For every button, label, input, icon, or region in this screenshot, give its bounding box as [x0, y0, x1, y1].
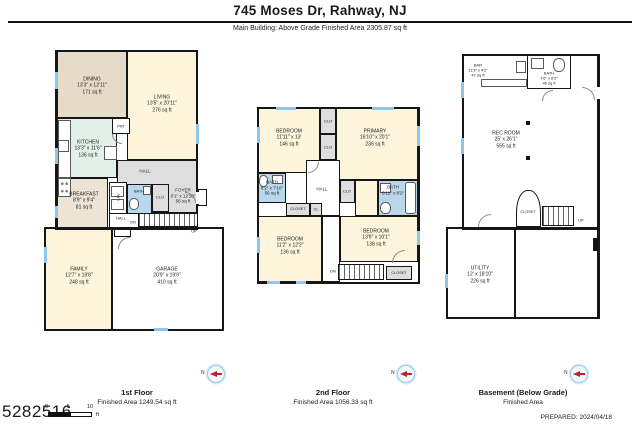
scale-label-0: 0: [45, 404, 48, 410]
page-subtitle: Main Building: Above Grade Finished Area…: [0, 25, 640, 32]
room-vestibule: [355, 180, 378, 216]
window: [372, 107, 394, 110]
stairs-second-floor: [338, 264, 384, 280]
bath-first-toilet: [129, 198, 139, 210]
compass-arrow-tail: [580, 373, 585, 375]
tag-closet-e: CLOSET: [391, 271, 406, 275]
label-kitchen: KITCHEN 13'3" x 11'6" 136 sq ft: [74, 140, 101, 159]
window: [55, 148, 58, 164]
label-utility: UTILITY 12' x 18'10" 226 sq ft: [467, 266, 493, 285]
label-dining: DINING 13'3" x 12'11" 171 sq ft: [77, 77, 107, 96]
page-title: 745 Moses Dr, Rahway, NJ: [0, 3, 640, 18]
tag-closet-first: CLO: [156, 195, 164, 200]
chimney: [593, 238, 598, 251]
label-bedroom1: BEDROOM 11'11" x 13' 146 sq ft: [276, 129, 302, 148]
tag-up-basement: UP: [578, 218, 584, 223]
bar-sink: [516, 61, 526, 73]
compass-arrow: [400, 371, 407, 377]
window: [44, 247, 47, 263]
room-closet-basement: [516, 190, 541, 227]
tag-up-first: UP: [191, 229, 197, 234]
window: [461, 138, 464, 154]
window: [296, 281, 306, 284]
basement-bath-sink: [531, 58, 544, 69]
support-column: [526, 121, 530, 125]
tag-clo-a: CLO: [324, 119, 332, 124]
stairs-basement: [542, 206, 574, 226]
compass-arrow-tail: [217, 373, 222, 375]
label-foyer: FOYER 6'1" x 12'10" 56 sq ft: [171, 188, 196, 205]
window: [276, 107, 296, 110]
window: [55, 72, 58, 89]
label-bath-basement: BATH 7'6" x 6'2" 46 sq ft: [540, 71, 558, 86]
tag-pantry: PNT: [117, 124, 125, 129]
caption-second-floor: 2nd Floor Finished Area 1056.33 sq ft: [293, 388, 372, 406]
bath2-toilet: [380, 202, 391, 214]
scale-label-10: 10: [87, 404, 93, 410]
scale-bar-segment: [48, 412, 70, 417]
window: [417, 231, 420, 245]
tag-hall-upper: HALL: [139, 169, 150, 174]
scale-unit: ft: [96, 412, 99, 418]
window: [154, 328, 168, 331]
label-rec: REC ROOM 25' x 26'1" 555 sq ft: [492, 131, 520, 150]
caption-basement: Basement (Below Grade) Finished Area: [479, 388, 568, 406]
tag-clo-b: CLO: [324, 145, 332, 150]
window: [257, 127, 260, 143]
bar-counter: [481, 79, 527, 87]
label-bath1: BATH 8'2" x 7'10" 56 sq ft: [261, 180, 283, 197]
floorplan-sheet: 745 Moses Dr, Rahway, NJ Main Building: …: [0, 0, 640, 426]
label-garage: GARAGE 20'9" x 19'9" 410 sq ft: [153, 267, 180, 286]
window: [461, 82, 464, 98]
scale-label-5: 5: [67, 404, 70, 410]
label-living: LIVING 13'5" x 20'11" 276 sq ft: [147, 95, 177, 114]
compass-arrow: [573, 371, 580, 377]
window: [55, 206, 58, 218]
caption-first-floor: 1st Floor Finished Area 1249.54 sq ft: [97, 388, 176, 406]
tag-closet-c: CLOSET: [290, 207, 305, 211]
window: [267, 281, 280, 284]
tag-hall-lower: HALL: [116, 216, 126, 221]
label-bedroom2: BEDROOM 11'2" x 12'2" 136 sq ft: [276, 237, 303, 256]
label-bar: BAR 11'3" x 4'2" 47 sq ft: [468, 63, 487, 78]
window: [257, 237, 260, 253]
window: [445, 274, 448, 288]
compass-icon: N: [397, 365, 415, 383]
tag-closet-cl: CL: [313, 207, 318, 212]
tag-dn-first: DN: [130, 220, 136, 225]
kitchen-fridge: [104, 146, 117, 160]
tag-hall-second: HALL: [316, 187, 327, 192]
stairs-first-floor: [138, 213, 198, 227]
label-bedroom3: BEDROOM 13'9" x 10'1" 138 sq ft: [362, 229, 389, 248]
tag-bath-first: BATH: [134, 189, 144, 194]
compass-arrow: [210, 371, 217, 377]
lav-sink-lower: [111, 199, 124, 210]
label-primary: PRIMARY 16'10" x 20'1" 236 sq ft: [360, 129, 390, 148]
scale-bar-segment: [70, 412, 92, 417]
label-bath2: BATH 6'11" x 8'2": [382, 184, 404, 195]
kitchen-sink: [58, 140, 69, 152]
compass-arrow-tail: [407, 373, 412, 375]
tag-clo-d: CLO: [343, 189, 351, 194]
bath2-tub: [405, 182, 416, 214]
bath-first-sink: [143, 186, 151, 195]
label-breakfast: BREAKFAST 8'9" x 9'4" 81 sq ft: [69, 192, 98, 211]
label-family: FAMILY 12'7" x 19'8" 248 sq ft: [65, 267, 92, 286]
window: [196, 124, 199, 144]
support-column: [526, 156, 530, 160]
compass-icon: N: [570, 365, 588, 383]
basement-door-opening: [596, 87, 600, 99]
title-divider: [8, 21, 632, 23]
room-storage: [515, 228, 598, 318]
front-door-opening: [196, 192, 200, 204]
tag-lav: LAV: [116, 193, 121, 200]
tag-closet-basement: CLOSET: [520, 210, 535, 214]
compass-icon: N: [207, 365, 225, 383]
window: [417, 126, 420, 146]
tag-dn-second: DN: [330, 269, 336, 274]
garage-step: [114, 229, 131, 237]
prepared-date: PREPARED: 2024/04/18: [480, 414, 612, 421]
